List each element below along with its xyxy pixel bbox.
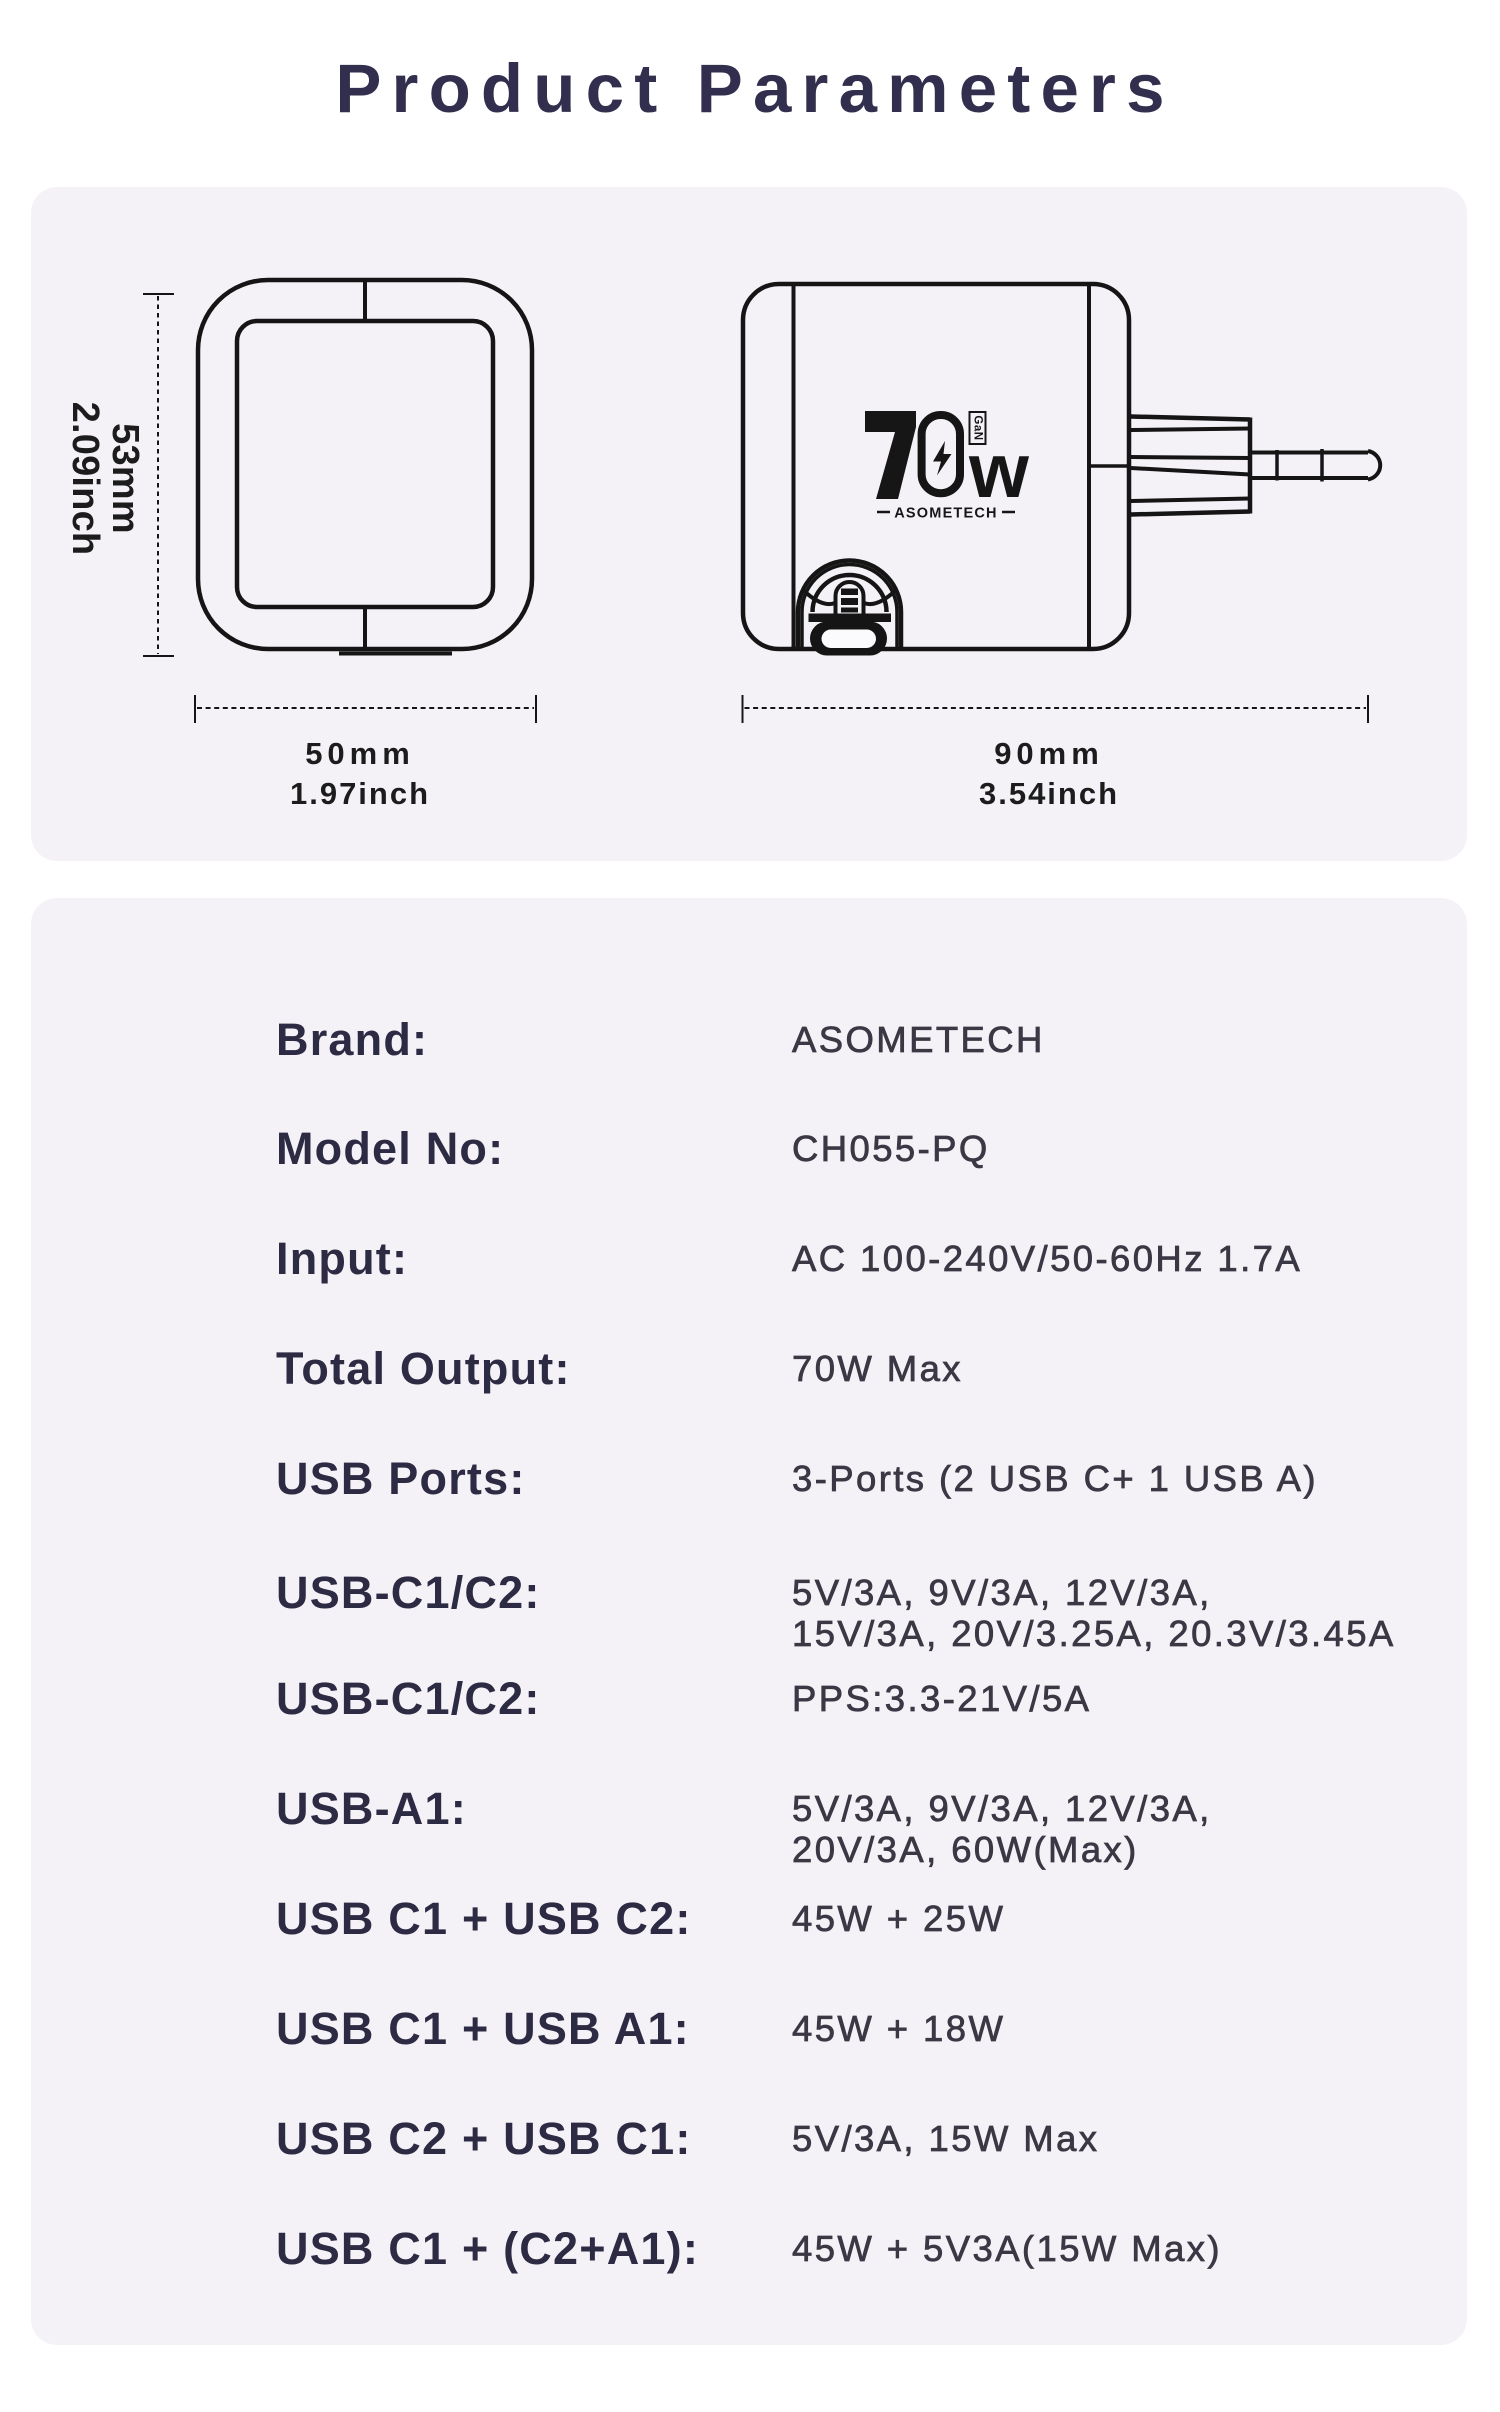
svg-text:90mm: 90mm bbox=[994, 736, 1104, 771]
svg-text:53mm: 53mm bbox=[104, 423, 146, 534]
svg-text:ASOMETECH: ASOMETECH bbox=[894, 506, 997, 522]
svg-text:3.54inch: 3.54inch bbox=[979, 776, 1119, 811]
svg-text:50mm: 50mm bbox=[305, 736, 415, 771]
svg-text:1.97inch: 1.97inch bbox=[290, 776, 430, 811]
svg-text:w: w bbox=[968, 428, 1030, 514]
svg-text:2.09inch: 2.09inch bbox=[64, 402, 106, 556]
